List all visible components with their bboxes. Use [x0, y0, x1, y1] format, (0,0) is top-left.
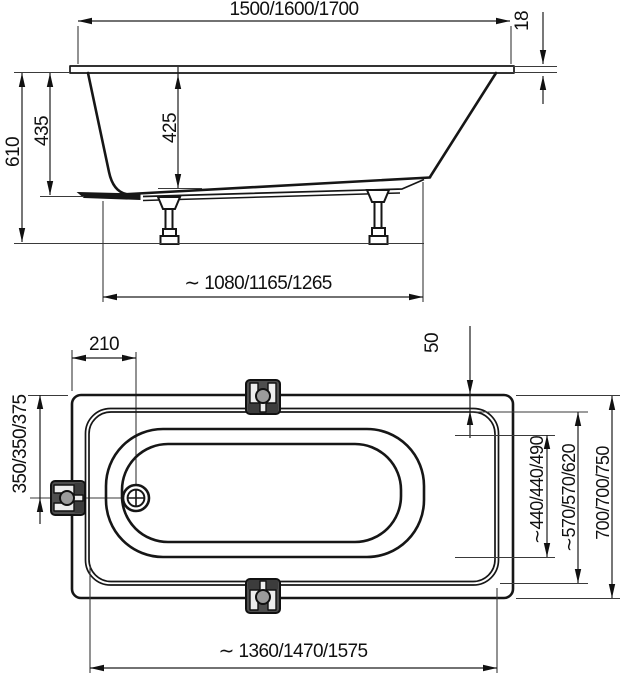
dim-inner-width-label: ∼570/570/620: [559, 443, 579, 552]
dim-inner-depth: 425: [158, 67, 202, 189]
dim-rim-width-label: 50: [422, 333, 443, 353]
dim-rim-thickness-label: 18: [512, 11, 533, 31]
dim-inner-length-label: ∼ 1360/1470/1575: [219, 641, 368, 662]
dim-floor-width: ∼440/440/490: [455, 435, 555, 558]
dim-overall-length-label: 1500/1600/1700: [230, 0, 359, 20]
technical-drawing-bathtub: 1500/1600/1700 18 610 435: [0, 0, 621, 678]
dim-overall-length: 1500/1600/1700: [78, 0, 511, 64]
bathtub-left-wall: [88, 73, 126, 194]
bathtub-bottom-flange: [78, 193, 140, 200]
dim-overall-height: 610: [3, 73, 70, 243]
dim-overall-width-label: 700/700/750: [593, 446, 613, 540]
dim-body-height-label: 435: [32, 116, 53, 146]
drain-icon: [123, 485, 149, 511]
dim-inner-depth-label: 425: [160, 113, 181, 143]
dim-drain-offset-x: 210: [72, 334, 136, 391]
bathtub-rim-profile: [70, 66, 514, 73]
adjustable-foot-right: [367, 190, 389, 244]
bathtub-right-wall: [430, 73, 496, 177]
mounting-bracket-top: [246, 380, 280, 414]
plan-view: 210 50 350/350/375 ∼440/440/490: [10, 326, 620, 673]
dim-drain-offset-x-label: 210: [89, 334, 119, 355]
adjustable-foot-left: [158, 197, 180, 244]
dim-base-length-label: ∼ 1080/1165/1265: [184, 273, 332, 294]
mounting-bracket-left: [51, 481, 85, 515]
drawing-canvas: 1500/1600/1700 18 610 435: [0, 0, 621, 678]
side-view: 1500/1600/1700 18 610 435: [3, 0, 557, 302]
dim-floor-width-label: ∼440/440/490: [527, 435, 547, 544]
dim-overall-height-label: 610: [3, 137, 24, 167]
dim-rim-width: 50: [422, 326, 588, 438]
dim-rim-thickness: 18: [512, 11, 557, 104]
mounting-bracket-bottom: [246, 579, 280, 613]
bathtub-basin-floor: [122, 444, 401, 542]
dim-body-height: 435: [32, 73, 84, 197]
dim-drain-offset-y-label: 350/350/375: [10, 394, 31, 493]
